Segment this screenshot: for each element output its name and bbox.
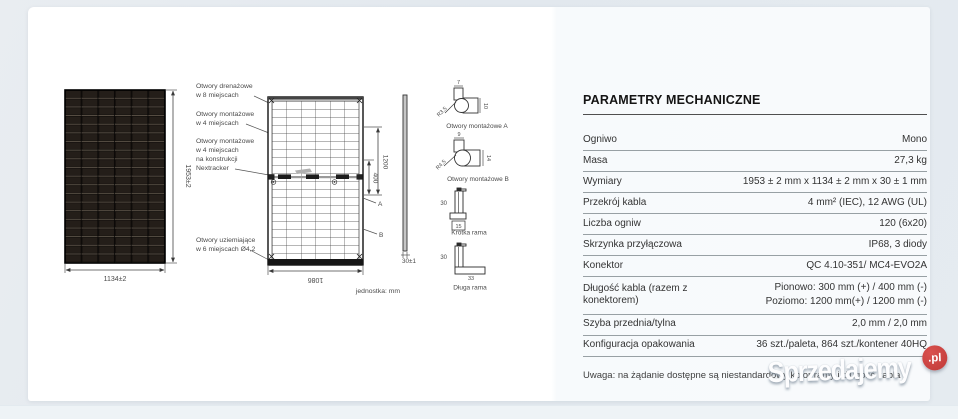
rear-dim-1200: 1200	[382, 155, 389, 170]
annotation-mount-line1: Otwory montażowe	[196, 111, 254, 118]
row-value: 2,0 mm / 2,0 mm	[676, 318, 927, 331]
side-view: 30±1	[401, 95, 416, 265]
row-label: Długość kabla (razem z konektorem)	[583, 283, 701, 308]
hole-b-width-dim: 9	[457, 132, 460, 138]
detail-hole-b: 9 14 R4.5 Otwory montażowe B	[435, 132, 509, 183]
table-row: Masa 27,3 kg	[583, 151, 927, 172]
rear-point-a: A	[378, 201, 383, 208]
table-row: Liczba ogniw 120 (6x20)	[583, 214, 927, 235]
detail-short-frame: 30 15 Krótka rama	[440, 188, 487, 237]
annotation-drain-line2: w 8 miejscach	[195, 92, 239, 99]
row-value: 36 szt./paleta, 864 szt./kontener 40HQ	[695, 339, 927, 352]
front-height-dim: 1953±2	[184, 164, 191, 187]
row-label: Przekrój kabla	[583, 197, 646, 210]
annotation-mount-line2: w 4 miejscach	[195, 120, 239, 127]
detail-short-frame-label: Krótka rama	[451, 230, 487, 237]
page-bottom-band	[0, 405, 958, 419]
short-frame-height-dim: 30	[440, 201, 447, 207]
table-row: Wymiary 1953 ± 2 mm x 1134 ± 2 mm x 30 ±…	[583, 172, 927, 193]
rear-dim-400: 400	[372, 173, 379, 184]
row-value: QC 4.10-351/ MC4-EVO2A	[623, 260, 927, 273]
hole-a-width-dim: 7	[457, 80, 460, 86]
table-row: Skrzynka przyłączowa IP68, 3 diody	[583, 235, 927, 256]
row-label: Skrzynka przyłączowa	[583, 239, 682, 252]
row-label: Masa	[583, 155, 607, 168]
detail-long-frame: 30 33 Długa rama	[440, 243, 487, 292]
hole-a-radius-dim: R3.5	[436, 106, 448, 118]
mechanical-parameters-table: PARAMETRY MECHANICZNE Ogniwo Mono Masa 2…	[583, 93, 927, 381]
detail-hole-b-label: Otwory montażowe B	[447, 176, 509, 183]
side-thickness-dim: 30±1	[402, 258, 416, 265]
annotation-tracker-line2: w 4 miejscach	[195, 147, 239, 154]
annotation-tracker-line4: Nextracker	[196, 165, 230, 172]
annotations: Otwory drenażowe w 8 miejscach Otwory mo…	[195, 83, 269, 260]
annotation-drain-line1: Otwory drenażowe	[196, 83, 253, 90]
row-label: Szyba przednia/tylna	[583, 318, 676, 331]
front-width-dim: 1134±2	[104, 276, 127, 283]
rear-point-b: B	[379, 232, 383, 239]
row-value: 4 mm² (IEC), 12 AWG (UL)	[646, 197, 927, 210]
table-note: Uwaga: na żądanie dostępne są niestandar…	[583, 370, 927, 381]
table-row: Szyba przednia/tylna 2,0 mm / 2,0 mm	[583, 315, 927, 336]
annotation-tracker-line3: na konstrukcji	[196, 156, 238, 163]
row-label: Wymiary	[583, 176, 622, 189]
rear-view: 1086 1200 400 A B	[268, 97, 389, 283]
panel-technical-drawing: 1953±2 1134±2 Otwory drenażowe w 8 miejs…	[40, 75, 540, 305]
table-row: Konfiguracja opakowania 36 szt./paleta, …	[583, 336, 927, 357]
unit-note: jednostka: mm	[355, 288, 401, 295]
long-frame-height-dim: 30	[440, 255, 447, 261]
hole-b-radius-dim: R4.5	[435, 159, 447, 171]
row-value-line1: Pionowo: 300 mm (+) / 400 mm (-)	[701, 281, 927, 296]
long-frame-width-dim: 33	[468, 276, 474, 282]
rear-width-dim: 1086	[308, 276, 324, 283]
detail-long-frame-label: Długa rama	[453, 285, 487, 292]
row-label: Konektor	[583, 260, 623, 273]
table-row: Długość kabla (razem z konektorem) Piono…	[583, 277, 927, 315]
hole-b-height-dim: 14	[485, 155, 491, 161]
row-value: 27,3 kg	[607, 155, 927, 168]
row-value: 1953 ± 2 mm x 1134 ± 2 mm x 30 ± 1 mm	[622, 176, 927, 189]
table-title: PARAMETRY MECHANICZNE	[583, 93, 927, 115]
front-view: 1953±2 1134±2	[65, 90, 191, 283]
annotation-ground-line2: w 6 miejscach Ø4,2	[195, 246, 256, 253]
table-row: Ogniwo Mono	[583, 130, 927, 151]
row-values: Pionowo: 300 mm (+) / 400 mm (-) Poziomo…	[701, 281, 927, 310]
table-rows: Ogniwo Mono Masa 27,3 kg Wymiary 1953 ± …	[583, 130, 927, 357]
hole-a-height-dim: 10	[482, 103, 488, 109]
detail-hole-a-label: Otwory montażowe A	[446, 123, 508, 130]
row-value: 120 (6x20)	[641, 218, 927, 231]
row-label: Liczba ogniw	[583, 218, 641, 231]
row-value: Mono	[617, 134, 927, 147]
detail-hole-a: 7 10 R3.5 Otwory montażowe A	[436, 80, 508, 130]
table-row: Przekrój kabla 4 mm² (IEC), 12 AWG (UL)	[583, 193, 927, 214]
annotation-tracker-line1: Otwory montażowe	[196, 138, 254, 145]
row-value: IP68, 3 diody	[682, 239, 927, 252]
row-label: Ogniwo	[583, 134, 617, 147]
table-row: Konektor QC 4.10-351/ MC4-EVO2A	[583, 256, 927, 277]
annotation-ground-line1: Otwory uziemiające	[196, 237, 256, 244]
row-value-line2: Poziomo: 1200 mm(+) / 1200 mm (-)	[701, 295, 927, 310]
row-label: Konfiguracja opakowania	[583, 339, 695, 352]
